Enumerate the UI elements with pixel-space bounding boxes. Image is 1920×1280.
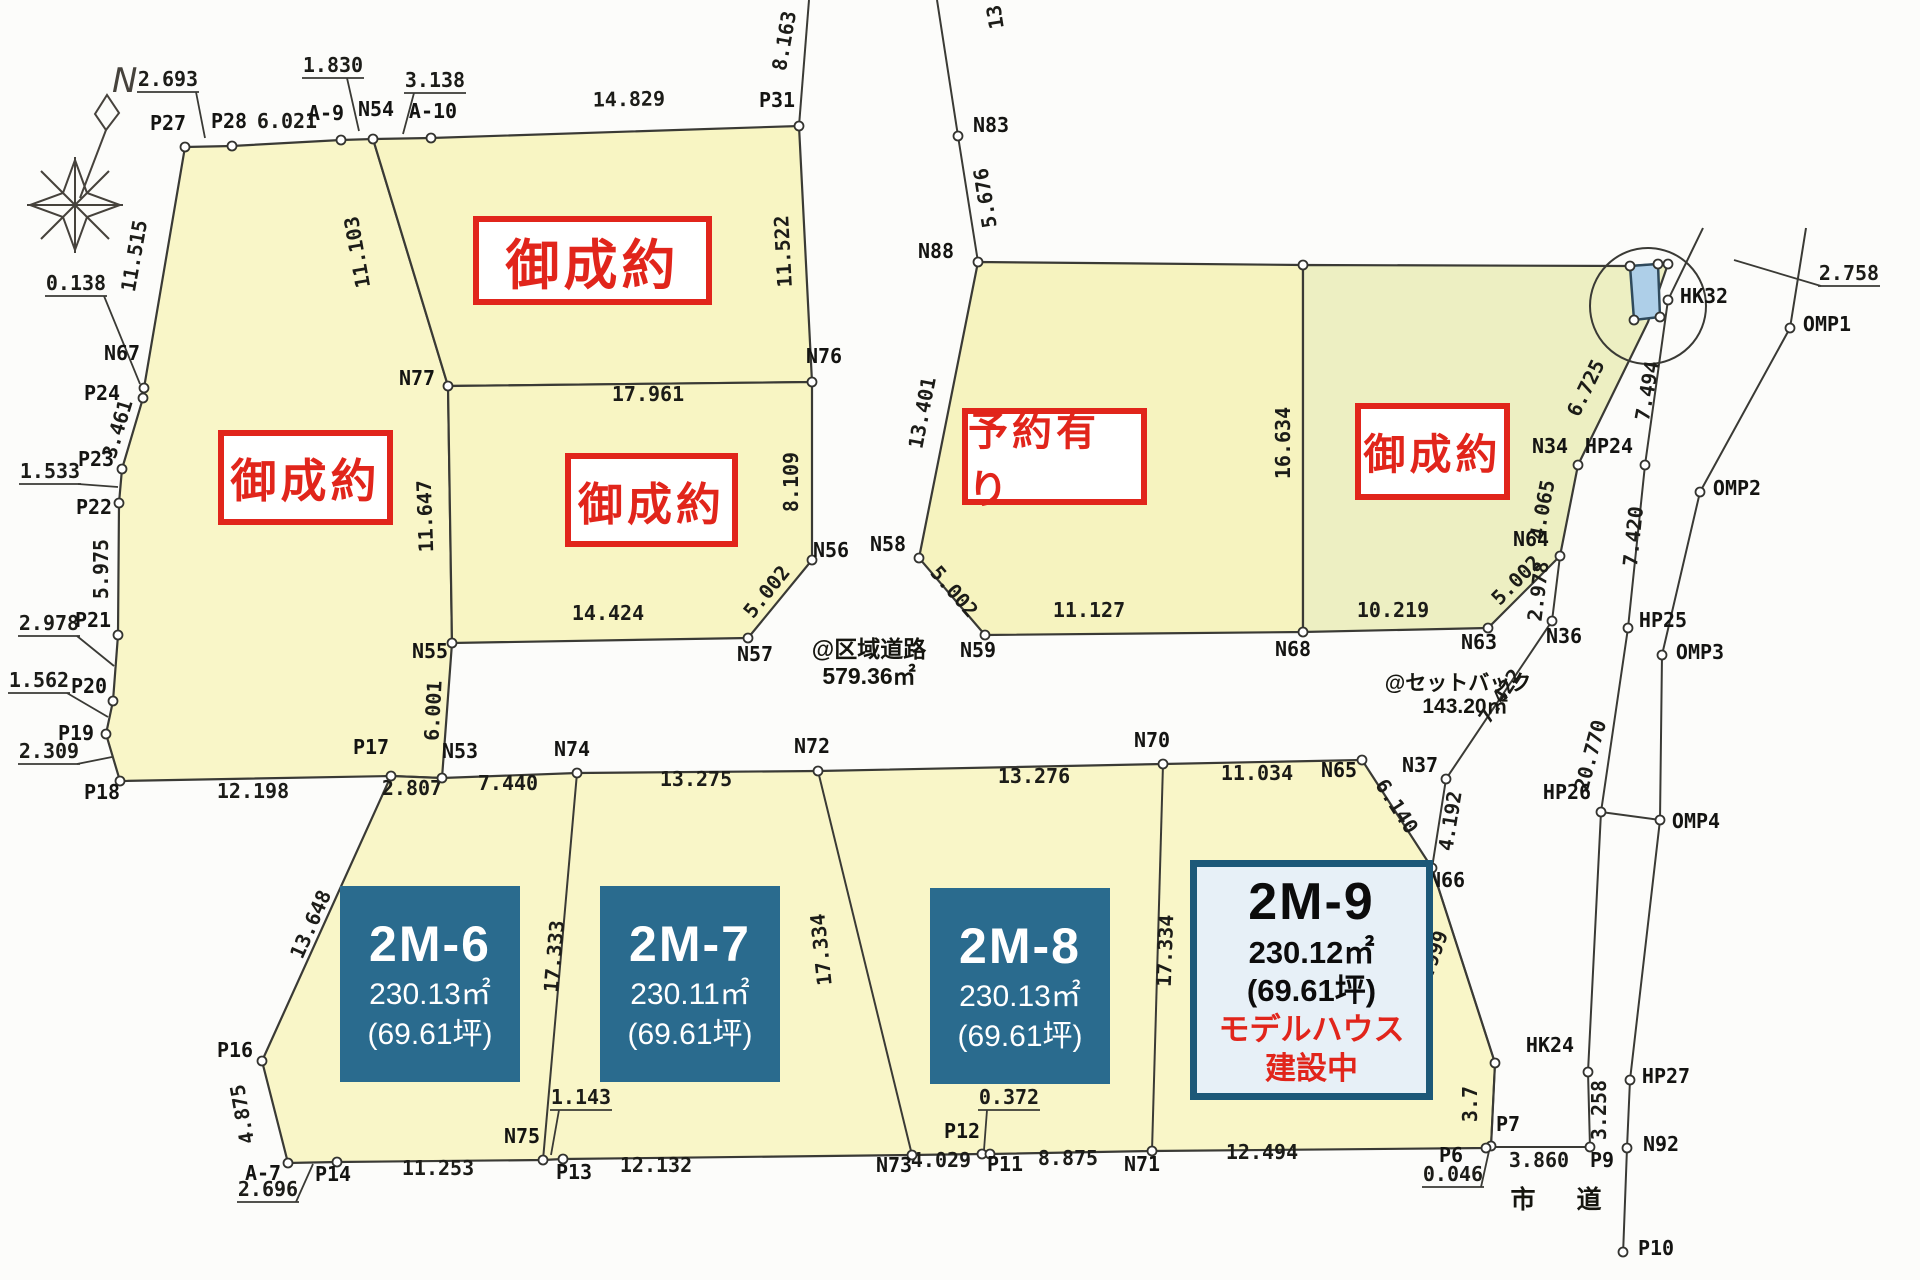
lot-tsubo: (69.61坪) [1247,974,1376,1009]
point-label-P22: P22 [76,495,112,519]
point-label-N66: N66 [1429,868,1465,892]
survey-node [1654,260,1663,269]
leader-line [77,636,114,666]
point-label-N71: N71 [1124,1152,1160,1176]
line-tie-hp26-omp4 [1601,812,1660,820]
point-label-N72: N72 [794,734,830,758]
leader-label: 2.758 [1819,261,1879,285]
point-label-N70: N70 [1134,728,1170,752]
point-label-P13: P13 [556,1160,592,1184]
point-label-P10: P10 [1638,1236,1674,1260]
survey-node-P28 [228,142,237,151]
leader-line [77,757,112,764]
point-label-N36: N36 [1546,624,1582,648]
point-label-P31: P31 [759,88,795,112]
survey-node-P27 [181,143,190,152]
district-road-area: 579.36㎡ [822,663,915,689]
point-label-N59: N59 [960,638,996,662]
dimension-label: 11.127 [1053,598,1125,622]
survey-node-OMP1 [1786,324,1795,333]
point-label-N92: N92 [1643,1132,1679,1156]
point-label-N54: N54 [358,97,394,121]
dimension-label: 4.192 [1434,789,1467,852]
compass-icon: N [27,61,137,253]
point-label-N76: N76 [806,344,842,368]
point-label-A-7: A-7 [245,1161,281,1185]
point-label-N64: N64 [1513,527,1549,551]
leader-line [196,92,205,138]
survey-node-N55 [448,639,457,648]
leader-line [78,484,118,487]
survey-node-P17 [387,772,396,781]
survey-node-N37 [1442,775,1451,784]
dimension-label: 6.001 [419,680,446,741]
dimension-label: 8.163 [767,9,801,72]
survey-node-OMP2 [1696,488,1705,497]
leader-line [104,296,140,384]
lot-area: 230.12㎡ [1249,936,1375,971]
leader-label: 3.138 [405,68,465,92]
lot-tsubo: (69.61坪) [957,1020,1082,1054]
dimension-label: 5.975 [89,539,113,599]
survey-node-P16 [258,1057,267,1066]
survey-node-N75 [539,1156,548,1165]
survey-node-P23 [118,465,127,474]
point-label-P18: P18 [84,780,120,804]
point-label-N74: N74 [554,737,590,761]
survey-node [1299,261,1308,270]
status-box-御成約: 御成約 [1355,403,1510,500]
point-label-N63: N63 [1461,630,1497,654]
point-label-P21: P21 [75,608,111,632]
dimension-label: 13.276 [998,764,1070,788]
leader-label: 2.978 [19,611,79,635]
survey-node [1664,260,1673,269]
dimension-label: 13.401 [903,375,940,451]
dimension-label: 5.676 [969,166,1002,229]
leader-label: 2.693 [138,67,198,91]
status-box-御成約: 御成約 [473,216,712,305]
point-label-OMP1: OMP1 [1803,312,1851,336]
survey-node-HP25 [1624,624,1633,633]
dimension-label: 13.275 [660,767,732,791]
point-label-OMP4: OMP4 [1672,809,1720,833]
survey-node-P6 [1482,1144,1491,1153]
point-label-N34: N34 [1532,434,1568,458]
lot-box-2M-9: 2M-9230.12㎡(69.61坪)モデルハウス建設中 [1190,860,1433,1100]
point-label-HK32: HK32 [1680,284,1728,308]
dimension-label: 16.634 [1271,407,1295,479]
point-label-P17: P17 [353,735,389,759]
survey-node-OMP3 [1658,651,1667,660]
survey-node [1630,316,1639,325]
status-box-御成約: 御成約 [218,430,393,525]
leader-label: 1.562 [9,668,69,692]
lot-name: 2M-6 [369,916,491,972]
point-label-P12: P12 [944,1119,980,1143]
point-label-N77: N77 [399,366,435,390]
survey-node-N76 [808,378,817,387]
line-p31-up [799,0,809,126]
land-plot-map: N @区域道路 579.36㎡ @セットバック 143.20㎡ 市 道 6.02… [0,0,1920,1280]
survey-node-N88 [974,258,983,267]
dimension-label: 12.132 [620,1153,692,1177]
dimension-label: 11.034 [1221,761,1293,785]
dimension-label: 4.875 [225,1082,259,1145]
survey-node-N72 [814,767,823,776]
dimension-label: 8.875 [1038,1146,1098,1170]
water-strip [1630,264,1660,320]
point-label-P28: P28 [211,109,247,133]
status-box-御成約: 御成約 [565,453,738,547]
lot-name: 2M-7 [629,916,751,972]
point-label-A-9: A-9 [308,101,344,125]
survey-node-HP27 [1626,1076,1635,1085]
survey-node-HK32 [1664,296,1673,305]
point-label-N53: N53 [442,739,478,763]
survey-node-P21 [114,631,123,640]
point-label-P23: P23 [78,447,114,471]
survey-node-N54 [369,135,378,144]
survey-node-OMP4 [1656,816,1665,825]
survey-node-N74 [573,769,582,778]
point-label-OMP3: OMP3 [1676,640,1724,664]
district-road-label: @区域道路 [812,636,927,662]
survey-node-N65 [1358,756,1367,765]
survey-node-P24 [139,394,148,403]
point-label-P9: P9 [1590,1148,1614,1172]
compass-n-label: N [112,61,137,101]
survey-node-N64 [1556,552,1565,561]
point-label-N55: N55 [412,639,448,663]
leader-line [1734,260,1821,286]
point-label-P19: P19 [58,721,94,745]
survey-node-N70 [1159,760,1168,769]
point-label-N75: N75 [504,1124,540,1148]
lot-box-2M-7: 2M-7230.11㎡(69.61坪) [600,886,780,1082]
lot-tsubo: (69.61坪) [627,1018,752,1052]
leader-label: 1.533 [20,459,80,483]
lot-area: 230.13㎡ [959,980,1081,1014]
dimension-label: 14.424 [572,601,644,625]
point-label-HP24: HP24 [1585,434,1633,458]
survey-node-HK24 [1584,1068,1593,1077]
point-label-P27: P27 [150,111,186,135]
dimension-label: 11.522 [769,215,797,288]
point-label-N83: N83 [973,113,1009,137]
lot-tsubo: (69.61坪) [367,1018,492,1052]
point-label-P14: P14 [315,1162,351,1186]
dimension-label: 7.494 [1630,359,1664,422]
point-label-HP27: HP27 [1642,1064,1690,1088]
dimension-label: 17.334 [1152,914,1179,987]
lot-box-2M-6: 2M-6230.13㎡(69.61坪) [340,886,520,1082]
survey-node-A-10 [427,134,436,143]
survey-map-canvas: N @区域道路 579.36㎡ @セットバック 143.20㎡ 市 道 6.02… [0,0,1920,1280]
survey-node-HP24 [1641,461,1650,470]
survey-node-A-9 [337,136,346,145]
survey-node-P31 [795,122,804,131]
point-label-N68: N68 [1275,637,1311,661]
lot-note-line1: モデルハウス [1219,1013,1405,1048]
dimension-label: 11.515 [116,218,152,293]
survey-node-N67 [140,384,149,393]
dimension-label: 7.420 [1618,505,1648,567]
leader-label: 0.138 [46,271,106,295]
dimension-label: 3.7 [1458,1086,1482,1122]
survey-node-A-7 [284,1159,293,1168]
status-box-予約有り: 予約有り [962,408,1147,505]
dimension-label: 8.109 [779,452,803,512]
lot-area: 230.13㎡ [369,978,491,1012]
point-label-N88: N88 [918,239,954,263]
point-label-N37: N37 [1402,753,1438,777]
survey-node-P22 [115,499,124,508]
survey-node [1656,313,1665,322]
dimension-label: 7.440 [478,771,538,795]
dimension-label: 17.961 [612,382,684,406]
leader-label: 1.143 [551,1085,611,1109]
survey-node-N83 [954,132,963,141]
dimension-label: 13 [981,3,1008,31]
point-label-P11: P11 [987,1152,1023,1176]
point-label-N65: N65 [1321,758,1357,782]
survey-node-P20 [109,697,118,706]
dimension-label: 10.219 [1357,598,1429,622]
survey-node [1491,1059,1500,1068]
survey-node-N77 [444,382,453,391]
survey-node-HP26 [1597,808,1606,817]
survey-node-P19 [102,730,111,739]
leader-label: 1.830 [303,53,363,77]
point-label-N56: N56 [813,538,849,562]
lot-name: 2M-9 [1248,873,1374,931]
dimension-label: 14.829 [593,86,666,111]
dimension-label: 3.258 [1587,1080,1611,1140]
survey-node [1626,262,1635,271]
point-label-OMP2: OMP2 [1713,476,1761,500]
leader-label: 0.372 [979,1085,1039,1109]
survey-node-N68 [1299,628,1308,637]
point-label-HK24: HK24 [1526,1033,1574,1057]
city-road-label: 市 道 [1510,1185,1609,1214]
dimension-label: 12.494 [1226,1140,1298,1164]
dimension-label: 3.860 [1509,1148,1569,1172]
survey-node-N53 [438,774,447,783]
lot-area: 230.11㎡ [630,978,750,1012]
lot-note-line2: 建設中 [1265,1052,1358,1087]
point-label-P6: P6 [1439,1143,1463,1167]
point-label-N73: N73 [876,1153,912,1177]
dimension-label: 11.253 [402,1156,474,1180]
leader-line [296,1164,313,1202]
point-label-P20: P20 [71,674,107,698]
survey-node-P10 [1619,1248,1628,1257]
survey-node-N58 [915,554,924,563]
point-label-P16: P16 [217,1038,253,1062]
point-label-N57: N57 [737,642,773,666]
point-label-P24: P24 [84,381,120,405]
dimension-label: 11.647 [412,480,439,553]
dimension-label: 4.029 [911,1148,971,1172]
point-label-HP25: HP25 [1639,608,1687,632]
dimension-label: 12.198 [217,779,289,803]
point-label-HP26: HP26 [1543,780,1591,804]
point-label-N58: N58 [870,532,906,556]
point-label-N67: N67 [104,341,140,365]
point-label-P7: P7 [1496,1112,1520,1136]
lot-name: 2M-8 [959,918,1081,974]
lot-box-2M-8: 2M-8230.13㎡(69.61坪) [930,888,1110,1084]
point-label-A-10: A-10 [409,99,457,123]
survey-node-N92 [1623,1144,1632,1153]
survey-node-N34 [1574,461,1583,470]
